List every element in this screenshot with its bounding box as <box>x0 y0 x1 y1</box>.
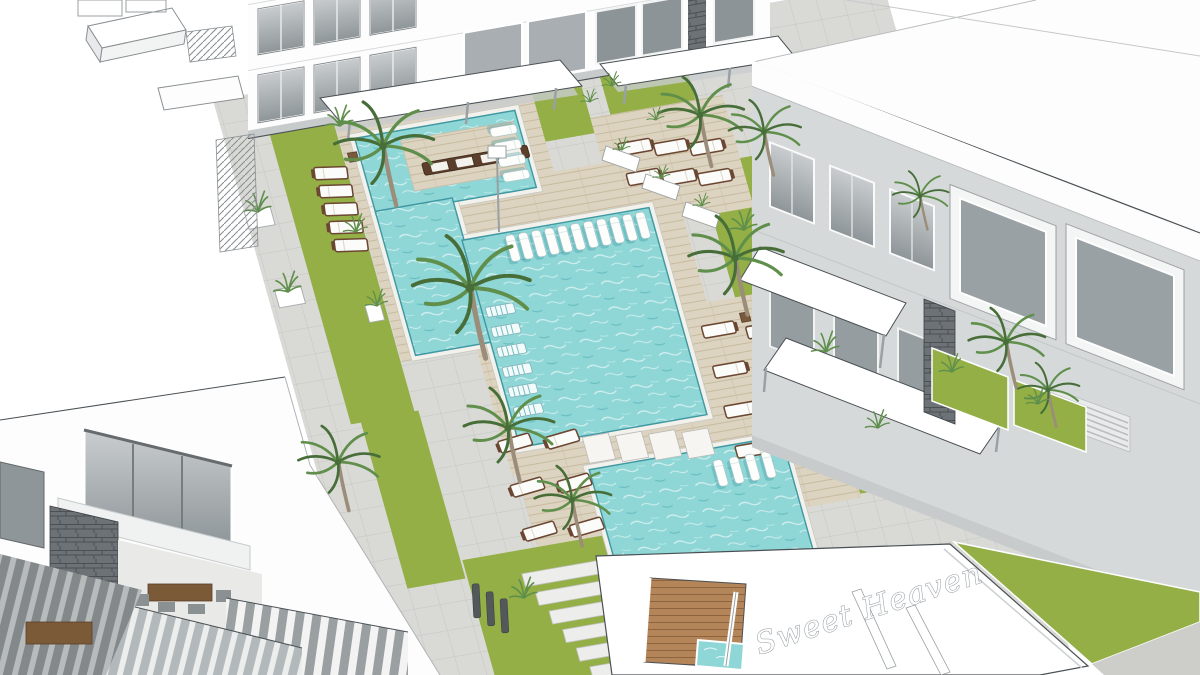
spa <box>696 640 744 670</box>
sweet-heaven-rendering: Sweet Heaven <box>0 0 1200 675</box>
side-window <box>0 462 44 548</box>
stair-hatch <box>216 134 258 252</box>
render-canvas: Sweet Heaven <box>0 0 1200 675</box>
canopy-spa-opening <box>644 578 746 670</box>
stair-hatch <box>186 26 236 62</box>
